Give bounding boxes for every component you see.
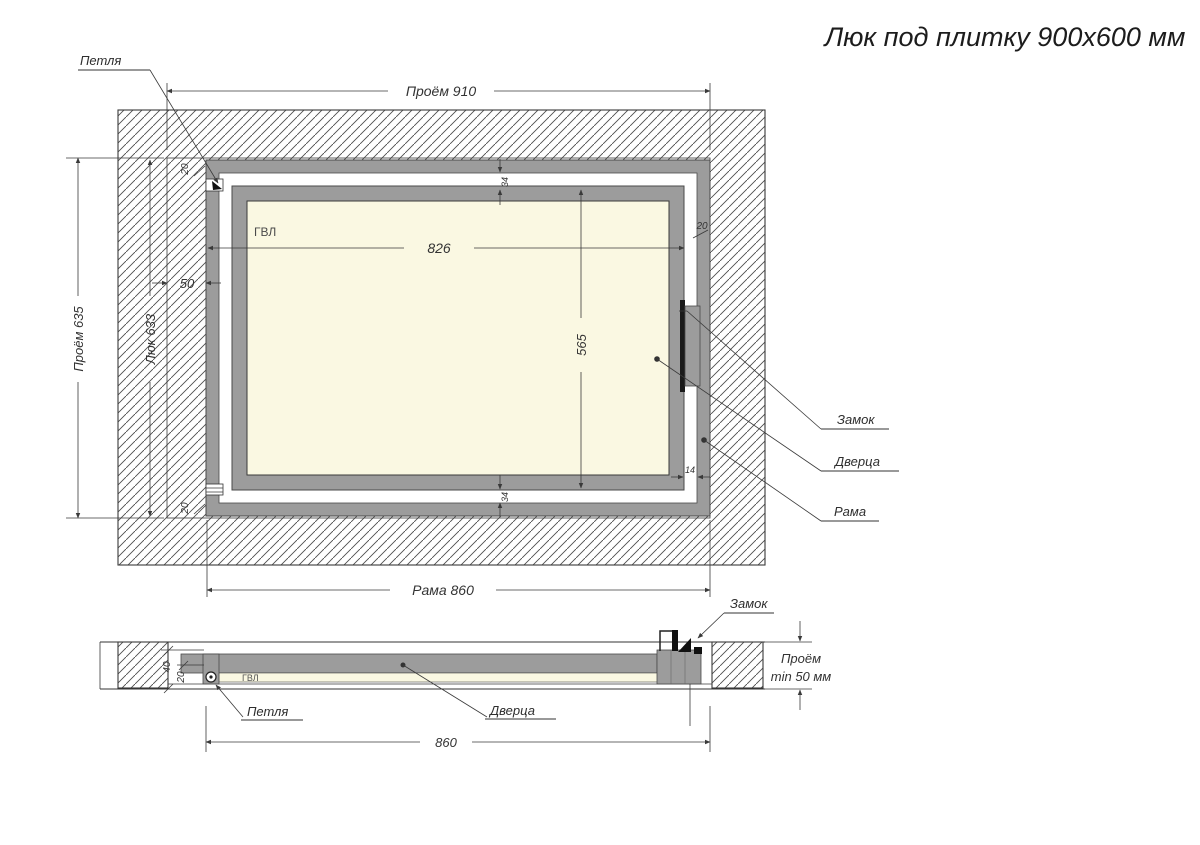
svg-text:Дверца: Дверца: [488, 703, 535, 718]
section-lock: [657, 630, 702, 726]
front-view: ГВЛ Проём 910: [66, 53, 899, 598]
svg-text:Замок: Замок: [837, 412, 875, 427]
section-gvl-label: ГВЛ: [242, 673, 259, 683]
svg-text:Проём: Проём: [781, 651, 821, 666]
svg-text:Проём 910: Проём 910: [406, 83, 477, 99]
page-title: Люк под плитку 900х600 мм: [823, 22, 1186, 52]
section-view: ГВЛ 40 20: [100, 596, 831, 752]
gvl-panel: [247, 201, 669, 475]
section-gvl-strip: [219, 673, 668, 682]
svg-text:Проём 635: Проём 635: [71, 306, 86, 372]
drawing-page: Люк под плитку 900х600 мм ГВЛ: [0, 0, 1200, 845]
svg-text:14: 14: [685, 465, 695, 475]
svg-text:min 50 мм: min 50 мм: [771, 669, 832, 684]
svg-text:20: 20: [180, 502, 191, 515]
section-leader-lock: Замок: [698, 596, 774, 638]
hinge-bottom: [206, 484, 223, 495]
svg-text:40: 40: [162, 661, 173, 673]
svg-text:Рама: Рама: [834, 504, 866, 519]
technical-drawing: Люк под плитку 900х600 мм ГВЛ: [0, 0, 1200, 845]
section-wall-right: [712, 642, 763, 688]
svg-text:565: 565: [574, 333, 589, 355]
svg-text:34: 34: [500, 492, 510, 502]
dim-clearance: Проём min 50 мм: [765, 621, 831, 710]
svg-text:826: 826: [427, 240, 451, 256]
svg-text:Замок: Замок: [730, 596, 768, 611]
svg-text:Рама 860: Рама 860: [412, 582, 474, 598]
svg-text:50: 50: [180, 276, 195, 291]
svg-text:860: 860: [435, 735, 457, 750]
svg-text:34: 34: [500, 177, 510, 187]
svg-text:Петля: Петля: [247, 704, 288, 719]
section-door-leaf: [181, 654, 657, 673]
svg-text:20: 20: [176, 671, 187, 684]
svg-text:20: 20: [180, 163, 191, 176]
svg-text:Дверца: Дверца: [833, 454, 880, 469]
hinge-top: [206, 179, 223, 191]
gvl-label: ГВЛ: [254, 225, 276, 239]
svg-text:Петля: Петля: [80, 53, 121, 68]
section-hinge: [206, 672, 216, 682]
svg-text:Люк 633: Люк 633: [143, 313, 158, 365]
section-wall-left: [118, 642, 168, 688]
section-leader-hinge: Петля: [216, 685, 303, 720]
svg-text:20: 20: [695, 221, 708, 232]
